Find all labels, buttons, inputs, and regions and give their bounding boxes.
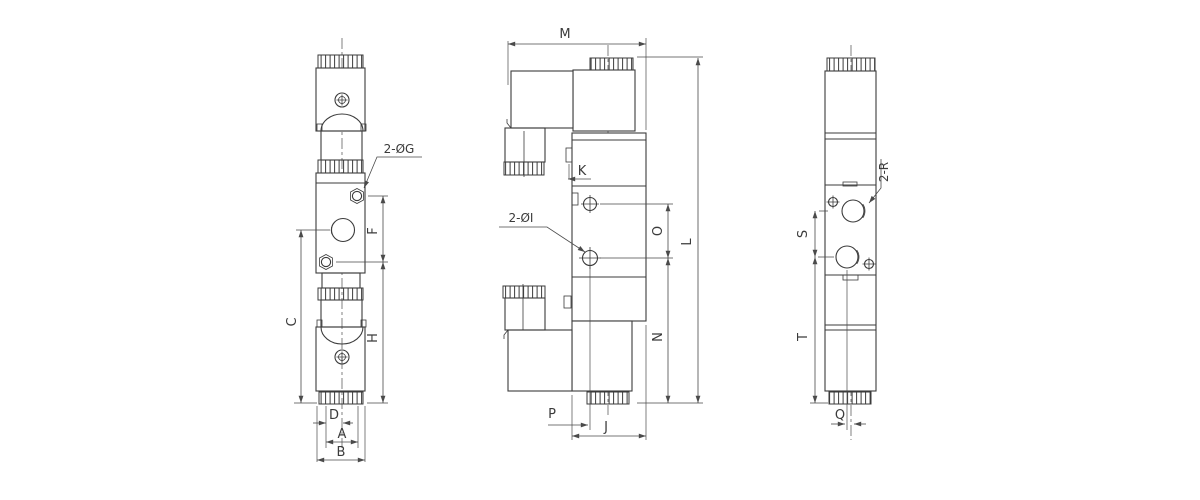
side-cable-block-top <box>505 128 545 162</box>
valve-dimension-drawing: C F H D A B 2-ØG <box>0 0 1200 500</box>
rear-top-knurl-cap <box>827 58 875 71</box>
front-neck-b1 <box>322 273 360 288</box>
side-cable-nut-bottom <box>503 286 545 298</box>
side-valve-body <box>572 133 646 321</box>
dim-label-f: F <box>366 227 381 234</box>
front-dim-a: A <box>326 427 358 442</box>
side-dim-o: O <box>651 204 668 258</box>
rear-dim-t: T <box>796 257 815 403</box>
dim-label-c: C <box>285 317 300 326</box>
dim-label-s: S <box>796 230 811 238</box>
rear-bottom-knurl-cap <box>829 392 871 404</box>
rear-dim-s: S <box>796 211 815 257</box>
dim-label-b: B <box>337 445 346 460</box>
dim-label-h: H <box>366 333 381 343</box>
dim-label-t: T <box>796 333 811 342</box>
front-top-screw <box>335 93 349 107</box>
technical-drawing-canvas: C F H D A B 2-ØG <box>0 0 1200 500</box>
dim-label-k: K <box>578 164 587 179</box>
front-bottom-screw <box>335 350 349 364</box>
front-bottom-knurl-cap <box>319 392 363 404</box>
front-knurl-ring-bottom <box>318 288 363 300</box>
dim-label-d: D <box>329 408 339 423</box>
rear-dim-q: Q <box>831 408 866 424</box>
side-top-connector-notch <box>507 119 511 128</box>
dim-label-j: J <box>603 420 608 435</box>
port-note-2og: 2-ØG <box>384 142 415 156</box>
side-top-knurl-cap <box>590 58 633 70</box>
side-bottom-connector-notch <box>504 330 508 339</box>
side-k-tab <box>566 148 572 162</box>
port-note-2oi: 2-ØI <box>509 211 534 225</box>
front-upper-body <box>316 68 365 131</box>
side-bottom-coil <box>572 321 632 391</box>
dim-label-m: M <box>559 27 570 42</box>
front-knurl-ring-top <box>318 160 363 173</box>
side-dim-l: L <box>680 58 698 403</box>
front-neck <box>321 131 362 160</box>
side-dim-p: P <box>548 407 588 425</box>
rear-body <box>825 71 876 391</box>
side-dim-j: J <box>572 420 646 436</box>
dim-label-q: Q <box>835 408 845 423</box>
dim-label-p: P <box>548 407 556 422</box>
side-dim-n: N <box>651 258 668 403</box>
front-neck-b2 <box>321 300 362 327</box>
side-cable-block-bottom <box>505 298 545 330</box>
front-dim-f: F <box>366 196 383 262</box>
side-lower-tab <box>564 296 571 308</box>
side-bottom-connector <box>508 330 572 391</box>
dim-label-l: L <box>680 238 695 246</box>
side-cable-nut-top <box>504 162 544 175</box>
side-view: M L O N K 2-ØI P J <box>499 27 703 440</box>
front-dim-d: D <box>313 408 353 423</box>
front-top-knurl-cap <box>318 55 363 68</box>
dim-label-n: N <box>651 332 666 342</box>
front-lower-body <box>316 327 365 391</box>
side-bottom-knurl-cap <box>587 392 629 404</box>
side-top-coil <box>573 70 635 131</box>
front-dim-h: H <box>366 262 383 403</box>
dim-label-o: O <box>651 226 666 236</box>
side-top-connector <box>511 71 573 128</box>
rear-view: S T Q 2-R <box>796 45 891 440</box>
front-dim-c: C <box>285 230 301 403</box>
dim-label-a: A <box>338 427 347 442</box>
front-port-note: 2-ØG <box>364 142 422 188</box>
side-dim-m: M <box>508 27 646 44</box>
port-note-2r: 2-R <box>877 162 891 182</box>
front-view: C F H D A B 2-ØG <box>285 38 422 462</box>
